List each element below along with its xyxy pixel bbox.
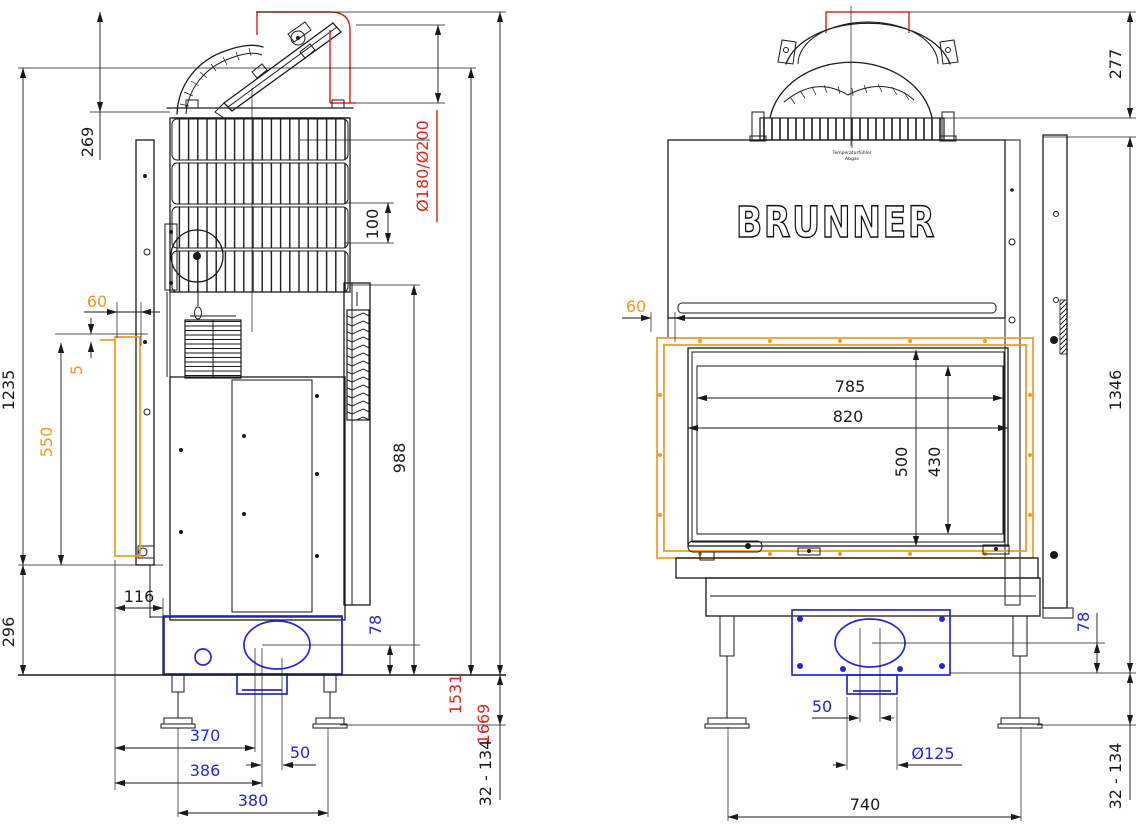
dim-side-50: 50 (290, 743, 310, 762)
side-legs (161, 675, 347, 728)
dim-side-60: 60 (87, 292, 107, 311)
dim-side-550: 550 (37, 427, 56, 458)
panel-note-line2: Abgas (845, 156, 860, 162)
dim-side-296: 296 (0, 617, 18, 648)
dim-side-988: 988 (390, 443, 409, 474)
drawing-svg: 269 1235 296 550 5 60 116 100 Ø180/Ø200 … (0, 0, 1146, 833)
dim-front-50: 50 (812, 697, 832, 716)
front-view: Temperaturfühler Abgas BRUNNER (622, 6, 1136, 821)
dim-side-78: 78 (366, 615, 385, 635)
dim-front-500: 500 (892, 447, 911, 478)
front-side-columns (1005, 135, 1073, 618)
dim-side-116: 116 (124, 587, 155, 606)
dim-side-leg-range: 32 - 134 (476, 740, 495, 807)
dim-front-277: 277 (1106, 49, 1125, 80)
dim-side-100: 100 (363, 209, 382, 240)
technical-drawing-fireplace: 269 1235 296 550 5 60 116 100 Ø180/Ø200 … (0, 0, 1146, 833)
dim-side-386: 386 (190, 761, 221, 780)
dim-side-flue-diameter: Ø180/Ø200 (413, 120, 432, 212)
dim-front-125: Ø125 (911, 744, 954, 763)
dim-side-5: 5 (67, 365, 86, 375)
front-door-frame-orange (657, 338, 1033, 558)
dim-side-370: 370 (190, 726, 221, 745)
side-dome-and-flap (177, 22, 341, 118)
front-dome (750, 6, 958, 146)
dim-front-785: 785 (835, 377, 866, 396)
dim-side-1531: 1531 (446, 674, 465, 715)
side-heat-exchanger (167, 88, 430, 332)
dim-front-740: 740 (850, 795, 881, 814)
dim-front-60: 60 (626, 297, 646, 316)
dim-front-820: 820 (833, 407, 864, 426)
side-view: 269 1235 296 550 5 60 116 100 Ø180/Ø200 … (0, 12, 506, 817)
dim-side-1669: 1669 (474, 704, 493, 745)
dim-front-leg-range: 32 - 134 (1106, 743, 1125, 810)
panel-note-line1: Temperaturfühler (832, 150, 872, 156)
front-air-box-blue (792, 610, 950, 694)
side-air-box-blue (164, 616, 342, 694)
front-panel: Temperaturfühler Abgas BRUNNER (668, 140, 1005, 338)
dim-front-430: 430 (925, 447, 944, 478)
dim-front-78: 78 (1074, 612, 1093, 632)
dim-front-1346: 1346 (1106, 370, 1125, 411)
dim-side-269: 269 (78, 127, 97, 158)
brand-logo: BRUNNER (736, 198, 936, 248)
side-door-orange (100, 337, 140, 556)
dim-side-1235: 1235 (0, 370, 18, 411)
dim-side-380: 380 (238, 791, 269, 810)
